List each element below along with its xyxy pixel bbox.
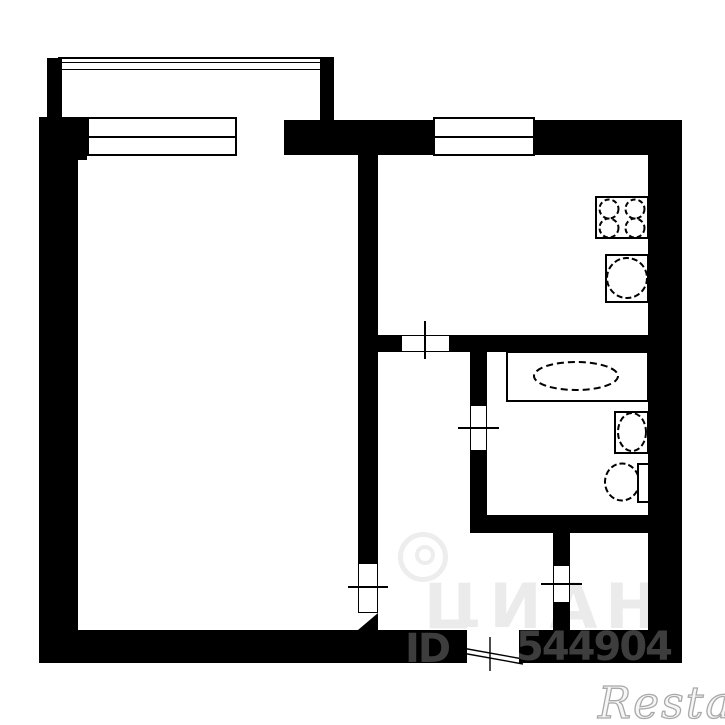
fixtures-layer	[0, 0, 725, 725]
id-watermark-number: 544904	[516, 624, 671, 670]
washbasin-icon	[615, 412, 648, 453]
bathtub-icon	[507, 352, 648, 401]
kitchen-sink-icon	[606, 255, 648, 302]
id-watermark-label: ID	[405, 626, 449, 672]
stove-icon	[596, 197, 648, 238]
toilet-icon	[605, 464, 649, 503]
brand-watermark: Restate	[598, 678, 725, 725]
floor-plan: ЦИАН	[0, 0, 725, 725]
entrance-door-mark	[462, 637, 523, 671]
